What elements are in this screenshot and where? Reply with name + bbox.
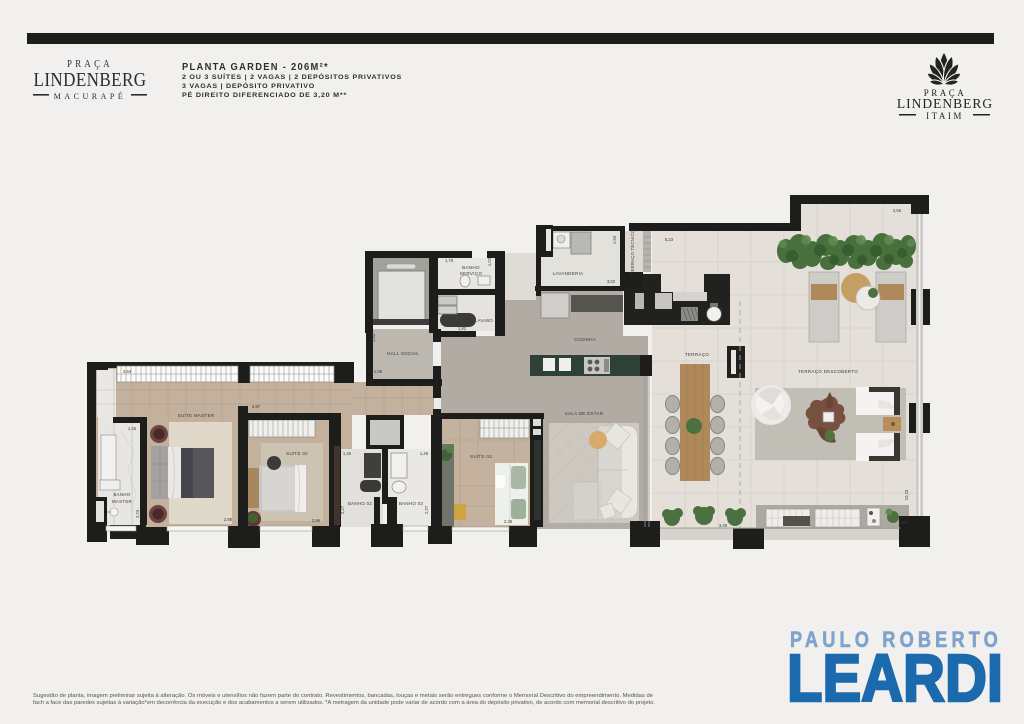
svg-text:TERRAÇO TÉCNICO: TERRAÇO TÉCNICO (630, 229, 635, 274)
svg-text:1,49: 1,49 (420, 451, 429, 456)
svg-text:HALL SOCIAL: HALL SOCIAL (387, 351, 419, 356)
svg-text:3,97: 3,97 (252, 404, 261, 409)
svg-text:SUÍTE 03: SUÍTE 03 (470, 453, 492, 459)
svg-text:1,82: 1,82 (458, 326, 467, 331)
svg-text:BANHO: BANHO (462, 265, 480, 270)
svg-text:SERVIÇO: SERVIÇO (460, 271, 483, 276)
svg-text:LAVANDERIA: LAVANDERIA (553, 271, 584, 276)
svg-text:1,50: 1,50 (371, 333, 376, 342)
svg-text:2,56: 2,56 (893, 208, 902, 213)
svg-text:10,23: 10,23 (904, 489, 909, 500)
svg-text:LEARDI: LEARDI (787, 641, 1003, 716)
svg-text:1,95: 1,95 (374, 369, 383, 374)
svg-text:LINDENBERG: LINDENBERG (34, 69, 147, 91)
svg-text:2,90: 2,90 (224, 517, 233, 522)
svg-text:BANHO 02: BANHO 02 (348, 501, 372, 506)
svg-text:SUÍTE MASTER: SUÍTE MASTER (178, 412, 215, 418)
svg-text:3,02: 3,02 (607, 279, 616, 284)
svg-text:1,45: 1,45 (343, 451, 352, 456)
svg-text:3,94: 3,94 (123, 369, 132, 374)
svg-text:1,79: 1,79 (445, 258, 454, 263)
svg-text:5,23: 5,23 (665, 237, 674, 242)
svg-text:TERRAÇO DESCOBERTO: TERRAÇO DESCOBERTO (798, 369, 858, 374)
svg-text:2,23: 2,23 (135, 509, 140, 518)
svg-text:BANHO 03: BANHO 03 (399, 501, 423, 506)
svg-text:2,36: 2,36 (504, 519, 513, 524)
svg-text:1,45: 1,45 (128, 426, 137, 431)
svg-text:LINDENBERG: LINDENBERG (897, 96, 993, 111)
svg-text:SUÍTE 02: SUÍTE 02 (286, 450, 308, 456)
svg-text:BANHO: BANHO (113, 492, 130, 497)
svg-text:MASTER: MASTER (112, 499, 132, 504)
svg-text:3,49: 3,49 (719, 523, 728, 528)
svg-text:fach a face das paredes sujeit: fach a face das paredes sujeitas à varia… (33, 700, 655, 706)
svg-text:PLANTA GARDEN - 206M²*: PLANTA GARDEN - 206M²* (182, 62, 329, 73)
svg-text:3 VAGAS | DEPÓSITO PRIVATIVO: 3 VAGAS | DEPÓSITO PRIVATIVO (182, 81, 315, 90)
svg-text:PÉ DIREITO DIFERENCIADO DE 3,2: PÉ DIREITO DIFERENCIADO DE 3,20 M** (182, 90, 347, 99)
svg-text:SALA DE ESTAR: SALA DE ESTAR (565, 411, 604, 416)
svg-text:2,27: 2,27 (340, 505, 345, 514)
svg-text:1,93: 1,93 (612, 235, 617, 244)
svg-text:MACURAPÉ: MACURAPÉ (54, 91, 126, 101)
svg-text:2,96: 2,96 (312, 518, 321, 523)
svg-text:2,27: 2,27 (424, 505, 429, 514)
svg-text:1,54: 1,54 (899, 520, 908, 525)
svg-text:TERRAÇO: TERRAÇO (685, 352, 709, 357)
svg-text:Sugestão de planta, imagem pre: Sugestão de planta, imagem preliminar su… (33, 693, 653, 699)
svg-text:ITAIM: ITAIM (926, 111, 964, 121)
svg-text:COZINHA: COZINHA (574, 337, 596, 342)
svg-text:LAVABO: LAVABO (475, 318, 493, 323)
svg-text:1,02: 1,02 (487, 257, 492, 266)
svg-text:2 OU 3 SUÍTES | 2 VAGAS | 2 DE: 2 OU 3 SUÍTES | 2 VAGAS | 2 DEPÓSITOS PR… (182, 72, 402, 81)
